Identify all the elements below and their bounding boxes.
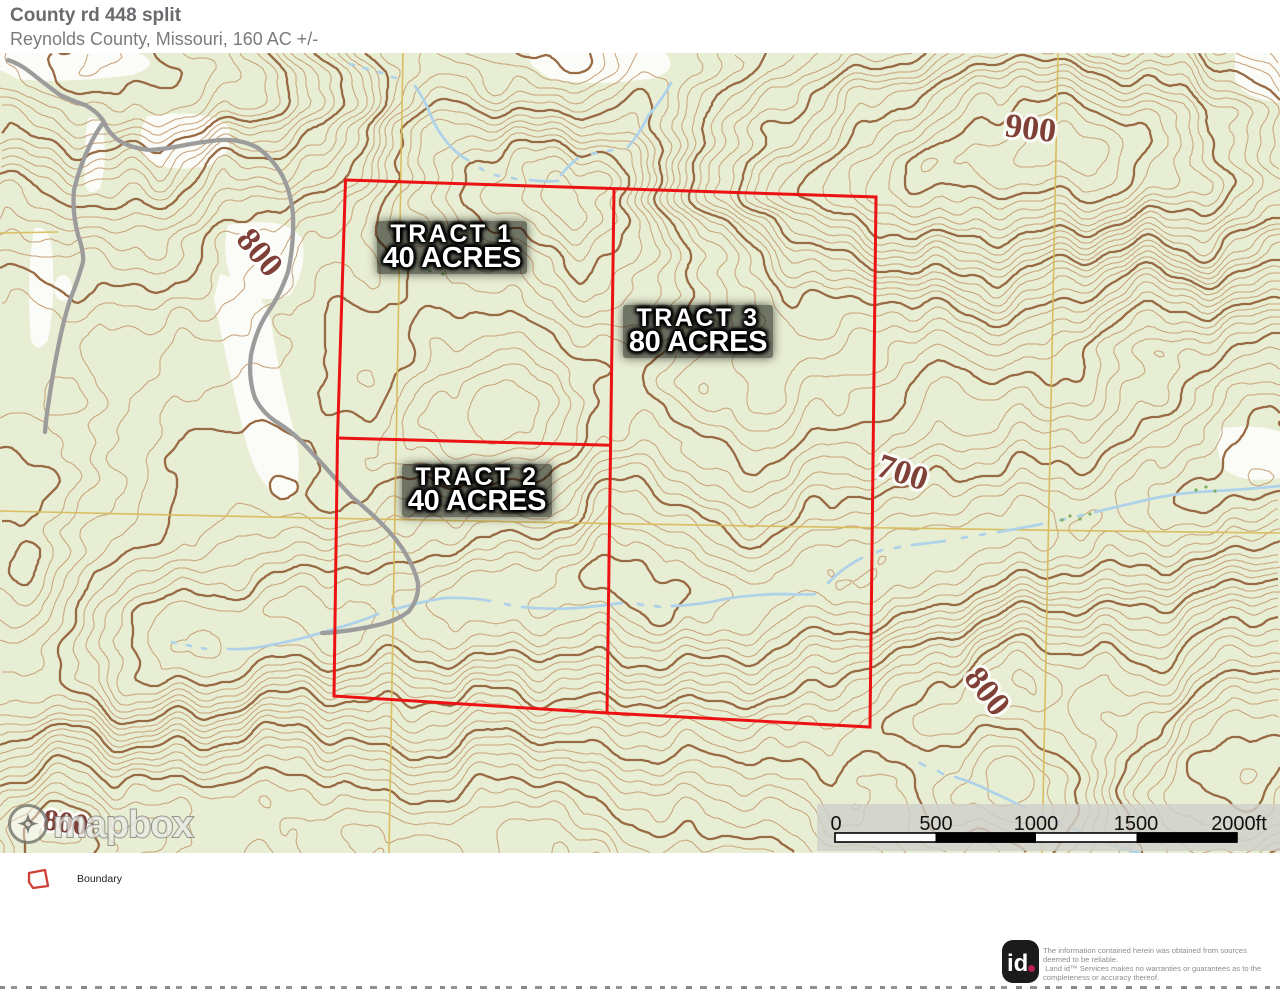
svg-text:id: id: [1007, 950, 1028, 977]
svg-text:2000ft: 2000ft: [1211, 813, 1267, 835]
svg-text:1500: 1500: [1114, 813, 1159, 835]
svg-text:0: 0: [830, 813, 841, 835]
svg-text:500: 500: [919, 813, 952, 835]
svg-text:1000: 1000: [1014, 813, 1059, 835]
svg-text:900: 900: [1003, 107, 1058, 150]
svg-text:mapbox: mapbox: [53, 804, 194, 846]
